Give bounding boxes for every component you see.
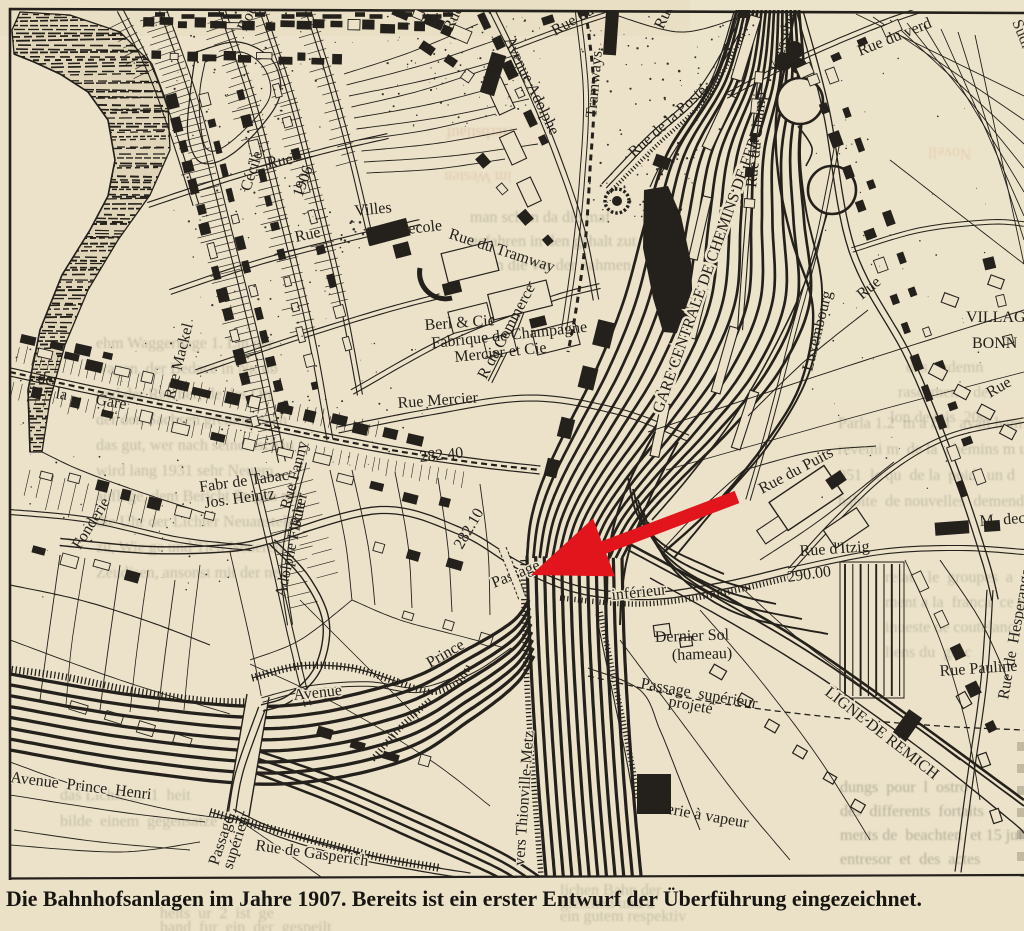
svg-text:(hameau): (hameau) [672,645,733,664]
svg-text:ment a la franca ce qu: ment a la franca ce qu [885,594,1024,611]
svg-text:de: de [36,369,54,388]
svg-text:entresor et des actes: entresor et des actes [840,851,980,868]
svg-text:das gut, wer nach seinemschau: das gut, wer nach seinemschau [96,437,294,454]
svg-text:Novell: Novell [927,143,972,162]
svg-text:bilde einem gegensatze: bilde einem gegensatze [60,813,217,830]
svg-text:Mce decole: Mce decole [979,508,1024,530]
svg-text:dungs pour l ostro: dungs pour l ostro [840,779,968,796]
svg-text:951 le qu de la poids un d: 951 le qu de la poids un d [838,467,1015,484]
svg-text:VILLAG: VILLAG [966,309,1024,326]
svg-text:habite de nouvelles demende: habite de nouvelles demende [838,493,1024,510]
svg-text:revemi m de la chemins m un: revemi m de la chemins m un di [838,441,1024,458]
svg-text:die Uhr der Lichter Neuanstell: die Uhr der Lichter Neuanstell [96,514,292,531]
svg-text:Die Bahnhofsanlagen im Jahre 1: Die Bahnhofsanlagen im Jahre 1907. Berei… [6,886,922,911]
svg-text:BONN: BONN [972,335,1018,352]
svg-text:hand fur ein der gespeilt: hand fur ein der gespeilt [160,919,332,931]
svg-text:man schon da die maf: man schon da die maf [470,209,611,226]
svg-text:rascements de: rascements de [898,384,988,401]
svg-text:Dernier Sol: Dernier Sol [655,626,730,646]
